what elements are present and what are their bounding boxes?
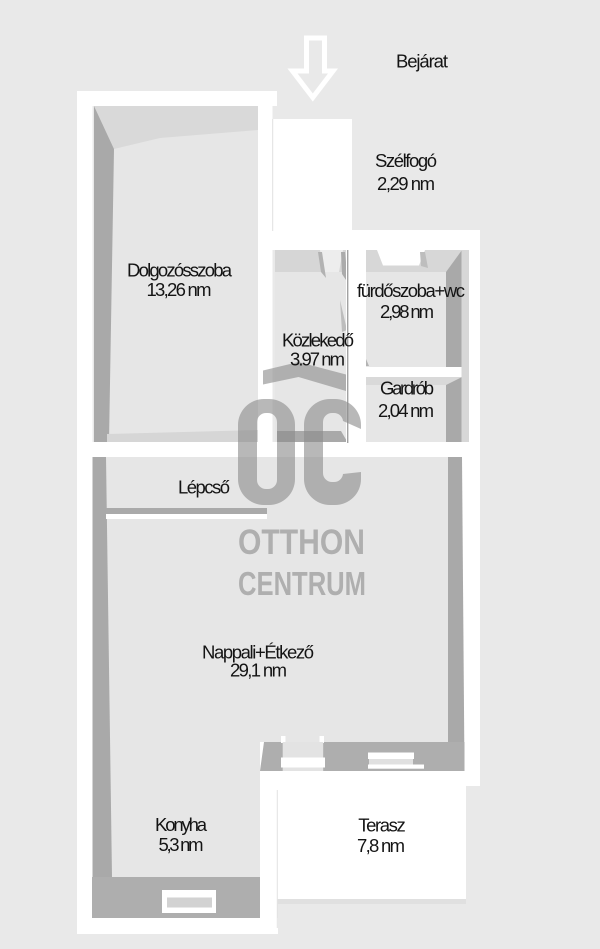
svg-text:Lépcső: Lépcső xyxy=(178,477,230,498)
svg-text:Dolgozósszoba: Dolgozósszoba xyxy=(127,260,233,281)
svg-text:Közlekedő: Közlekedő xyxy=(282,330,354,351)
svg-text:CENTRUM: CENTRUM xyxy=(238,566,366,603)
svg-text:13,26 nm: 13,26 nm xyxy=(147,279,212,300)
svg-text:OTTHON: OTTHON xyxy=(238,522,365,562)
svg-text:2,04 nm: 2,04 nm xyxy=(378,400,434,421)
svg-text:2,98 nm: 2,98 nm xyxy=(380,301,434,322)
svg-text:Szélfogó: Szélfogó xyxy=(375,150,437,171)
svg-text:Bejárat: Bejárat xyxy=(396,51,448,72)
svg-text:Gardrób: Gardrób xyxy=(380,378,434,399)
svg-text:fürdőszoba+wc: fürdőszoba+wc xyxy=(357,280,465,301)
svg-text:29,1 nm: 29,1 nm xyxy=(230,660,287,681)
svg-text:5,3 nm: 5,3 nm xyxy=(159,834,204,855)
svg-text:2,29 nm: 2,29 nm xyxy=(377,173,435,194)
svg-text:Konyha: Konyha xyxy=(155,814,208,835)
svg-text:3.97 nm: 3.97 nm xyxy=(290,349,345,370)
svg-text:Terasz: Terasz xyxy=(358,815,406,836)
svg-text:7,8 nm: 7,8 nm xyxy=(357,835,405,856)
